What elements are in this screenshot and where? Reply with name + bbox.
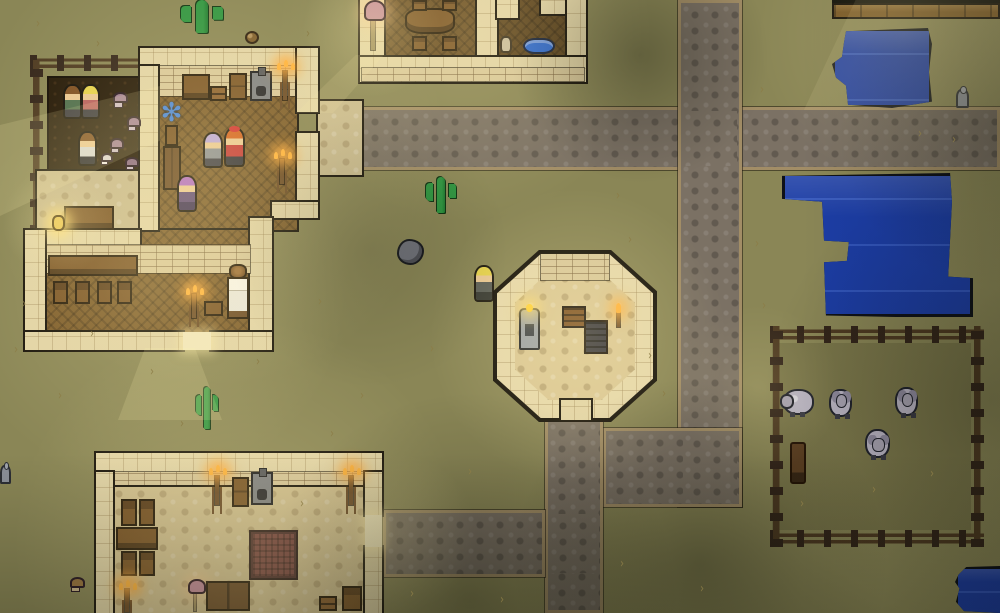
chair[interactable] bbox=[139, 551, 155, 576]
purple-mushroom[interactable] bbox=[114, 96, 123, 108]
path-junction bbox=[549, 514, 599, 573]
east-door-landing bbox=[318, 101, 362, 175]
chair[interactable] bbox=[442, 0, 457, 11]
candelabra[interactable] bbox=[274, 60, 296, 100]
dresser[interactable] bbox=[229, 73, 247, 100]
purple-mushroom[interactable] bbox=[126, 160, 134, 170]
house-nw-wall-courtyard bbox=[45, 230, 140, 245]
grass-tuft-mark: › bbox=[360, 391, 364, 404]
stone-lantern[interactable] bbox=[519, 308, 540, 350]
house-n-wall-right bbox=[567, 0, 586, 55]
tavern-wall-left bbox=[96, 472, 113, 613]
house-nw-wall-mid bbox=[250, 218, 272, 332]
chair[interactable] bbox=[121, 499, 137, 526]
candelabra[interactable] bbox=[206, 465, 228, 505]
cactus[interactable] bbox=[426, 177, 456, 213]
tavern-east-door[interactable] bbox=[365, 515, 382, 547]
brown-mushroom[interactable] bbox=[71, 581, 80, 592]
house-nw-wall-bottom-b bbox=[211, 332, 272, 350]
chair[interactable] bbox=[117, 281, 132, 304]
wooden-dock-edge bbox=[832, 3, 1000, 19]
feeding-trough[interactable] bbox=[790, 442, 806, 484]
villager-farmer[interactable] bbox=[65, 86, 80, 117]
sheep-pen-fence-east bbox=[971, 326, 984, 547]
pond-water bbox=[835, 31, 929, 105]
grass-tuft-mark: › bbox=[500, 595, 504, 608]
path-junction bbox=[683, 111, 737, 166]
farm-fence-north bbox=[30, 55, 144, 71]
grass-tuft-mark: › bbox=[430, 344, 434, 357]
grass-tuft-mark: › bbox=[755, 239, 759, 252]
grass-tuft-mark: › bbox=[306, 29, 310, 42]
grass-tuft-mark: › bbox=[14, 345, 18, 358]
house-nw-wall-left bbox=[140, 66, 158, 230]
sheep[interactable] bbox=[895, 387, 918, 416]
grass-tuft-mark: › bbox=[330, 429, 334, 442]
house-nw-wall-right bbox=[297, 48, 318, 112]
candelabra[interactable] bbox=[183, 285, 205, 318]
grass-tuft-mark: › bbox=[36, 19, 40, 32]
storage-chest[interactable] bbox=[319, 596, 337, 611]
candelabra[interactable] bbox=[270, 149, 294, 184]
purple-mushroom[interactable] bbox=[128, 120, 136, 131]
path-junction bbox=[683, 432, 737, 503]
chair[interactable] bbox=[442, 36, 457, 51]
sheep[interactable] bbox=[829, 389, 852, 417]
plaza bbox=[493, 250, 657, 422]
rock[interactable] bbox=[397, 239, 424, 265]
dresser[interactable] bbox=[232, 477, 249, 507]
tavern-wall-right-a bbox=[365, 472, 382, 515]
chair[interactable] bbox=[97, 281, 112, 304]
pond-small-north bbox=[832, 28, 932, 108]
cobblestone-path-to-tavern-door bbox=[383, 510, 545, 577]
house-n-wall-brick bbox=[362, 68, 584, 81]
house-nw-wall-right2 bbox=[297, 133, 318, 202]
pink-shade-lamp[interactable] bbox=[187, 579, 203, 611]
gold-lamp[interactable] bbox=[52, 215, 65, 231]
sheep-pen-fence-south bbox=[770, 530, 984, 547]
sheep-pen-fence-west bbox=[770, 326, 783, 547]
villager-farmhand[interactable] bbox=[80, 133, 95, 164]
chair[interactable] bbox=[412, 36, 427, 51]
grass-tuft-mark: › bbox=[628, 235, 632, 248]
iron-stove[interactable] bbox=[250, 71, 272, 101]
tavern-wall-right-b bbox=[365, 547, 382, 613]
purple-mushroom[interactable] bbox=[111, 142, 119, 153]
long-dining-table[interactable] bbox=[48, 255, 138, 276]
house-n-wall-pillar-b bbox=[541, 0, 567, 14]
plaza-torch[interactable] bbox=[613, 303, 624, 327]
grass-tuft-mark: › bbox=[760, 85, 764, 98]
house-n-wall-mid bbox=[477, 0, 497, 55]
pond-water bbox=[785, 176, 970, 314]
small-statue[interactable] bbox=[0, 465, 11, 484]
plaza-wall-north bbox=[541, 254, 609, 280]
grass-tuft-mark: › bbox=[58, 391, 62, 404]
round-table[interactable] bbox=[405, 8, 455, 34]
house-nw-south-door[interactable] bbox=[183, 332, 211, 350]
grass-tuft-mark: › bbox=[468, 467, 472, 480]
grass-tuft-mark: › bbox=[616, 191, 620, 204]
blue-bathtub[interactable] bbox=[523, 38, 555, 54]
tumbleweed[interactable] bbox=[245, 31, 259, 44]
sheep[interactable] bbox=[783, 389, 814, 415]
storage-chest[interactable] bbox=[210, 86, 227, 101]
cactus[interactable] bbox=[181, 0, 223, 33]
mine-ladder-wood[interactable] bbox=[562, 306, 586, 328]
chair[interactable] bbox=[75, 281, 90, 304]
game-viewport: ›››››››››››››››››››››››››››››››› bbox=[0, 0, 1000, 613]
grass-tuft-mark: › bbox=[662, 389, 666, 402]
bed[interactable] bbox=[227, 277, 249, 319]
villager-lavender-hair[interactable] bbox=[205, 134, 221, 166]
teapot-table[interactable] bbox=[182, 74, 210, 100]
pink-shade-lamp[interactable] bbox=[362, 0, 384, 50]
grass-tuft-mark: › bbox=[762, 301, 766, 314]
villager-red-bow[interactable] bbox=[226, 129, 243, 165]
iron-stove[interactable] bbox=[251, 472, 273, 505]
sheep-pen-fence-north bbox=[770, 326, 984, 343]
grass-tuft-mark: › bbox=[180, 419, 184, 432]
potted-blue-agave[interactable] bbox=[161, 104, 182, 146]
cactus[interactable] bbox=[196, 387, 218, 429]
tavern-table[interactable] bbox=[116, 527, 158, 550]
courtyard-table[interactable] bbox=[64, 206, 114, 230]
traveler-on-path[interactable] bbox=[476, 267, 492, 300]
pond-large-east bbox=[782, 173, 973, 317]
villager-pink-hair[interactable] bbox=[179, 177, 195, 210]
house-nw-wall-left-lower bbox=[25, 230, 45, 332]
house-n-wall-pillar-a bbox=[497, 0, 518, 18]
pond-water bbox=[958, 569, 1000, 613]
grass-tuft-mark: › bbox=[256, 357, 260, 370]
armchair[interactable] bbox=[342, 586, 362, 611]
chair[interactable] bbox=[121, 551, 137, 576]
red-rug[interactable] bbox=[251, 532, 296, 578]
plaza-step-south bbox=[561, 400, 591, 420]
stool[interactable] bbox=[204, 301, 223, 316]
chair[interactable] bbox=[412, 0, 427, 11]
house-nw-wall-step bbox=[272, 202, 318, 218]
chair[interactable] bbox=[53, 281, 68, 304]
small-statue[interactable] bbox=[956, 89, 969, 108]
candelabra[interactable] bbox=[116, 580, 138, 612]
double-wardrobe[interactable] bbox=[206, 581, 250, 611]
grass-tuft-mark: › bbox=[150, 367, 154, 380]
villager-blonde[interactable] bbox=[83, 86, 98, 117]
sheep[interactable] bbox=[865, 429, 890, 458]
pond-corner-southeast bbox=[955, 566, 1000, 613]
house-nw-wall-bottom-a bbox=[25, 332, 183, 350]
water-jug[interactable] bbox=[500, 36, 512, 53]
grass-tuft-mark: › bbox=[318, 297, 322, 310]
mine-ladder-dark[interactable] bbox=[584, 320, 608, 354]
grass-tuft-mark: › bbox=[410, 589, 414, 602]
candelabra[interactable] bbox=[340, 465, 362, 505]
chair[interactable] bbox=[139, 499, 155, 526]
white-mushroom[interactable] bbox=[101, 156, 108, 165]
grass-tuft-mark: › bbox=[96, 39, 100, 52]
grass-tuft-mark: › bbox=[620, 559, 624, 572]
grass-tuft-mark: › bbox=[700, 584, 704, 597]
